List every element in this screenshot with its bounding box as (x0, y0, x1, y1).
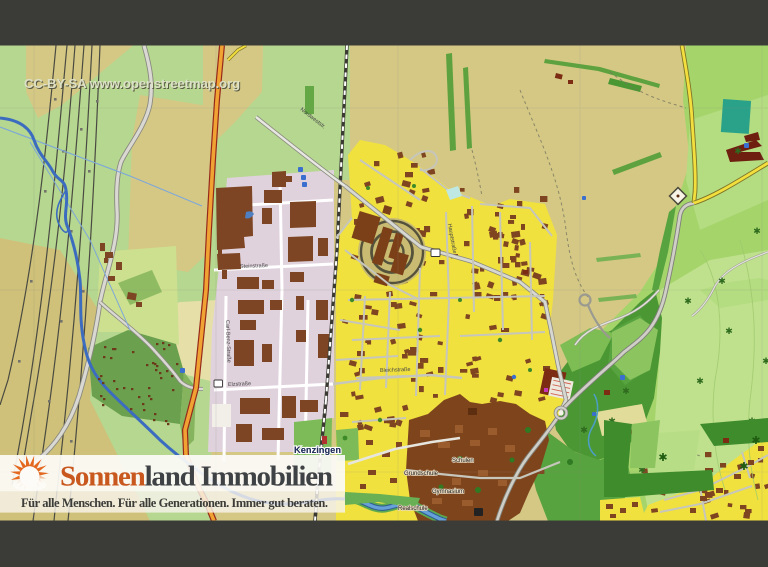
svg-text:Kenzingen: Kenzingen (294, 445, 341, 455)
svg-text:Elzstraße: Elzstraße (228, 381, 251, 388)
svg-text:Steinstraße: Steinstraße (240, 263, 268, 270)
svg-text:✱: ✱ (718, 276, 726, 286)
svg-text:✱: ✱ (751, 435, 760, 447)
svg-text:CC-BY-SA www.openstreetmap.org: CC-BY-SA www.openstreetmap.org (24, 76, 240, 91)
svg-text:✱: ✱ (753, 226, 761, 236)
svg-text:✱: ✱ (734, 146, 742, 156)
svg-text:✱: ✱ (684, 296, 692, 306)
svg-text:Gymnasium: Gymnasium (432, 489, 464, 495)
svg-text:Grundschule: Grundschule (404, 471, 439, 477)
svg-text:✱: ✱ (622, 386, 630, 396)
svg-text:Für alle Menschen. Für alle Ge: Für alle Menschen. Für alle Generationen… (21, 496, 328, 510)
svg-text:✱: ✱ (696, 376, 704, 386)
svg-text:✱: ✱ (762, 356, 768, 366)
svg-text:✱: ✱ (725, 326, 733, 336)
svg-text:Schulen: Schulen (452, 458, 474, 464)
svg-text:Sonnenland Immobilien: Sonnenland Immobilien (60, 461, 333, 493)
svg-text:Bleichstraße: Bleichstraße (380, 367, 411, 374)
svg-text:✱: ✱ (739, 461, 748, 473)
svg-text:✱: ✱ (658, 452, 667, 464)
svg-text:Realschule: Realschule (398, 506, 428, 512)
svg-text:✱: ✱ (580, 425, 588, 435)
